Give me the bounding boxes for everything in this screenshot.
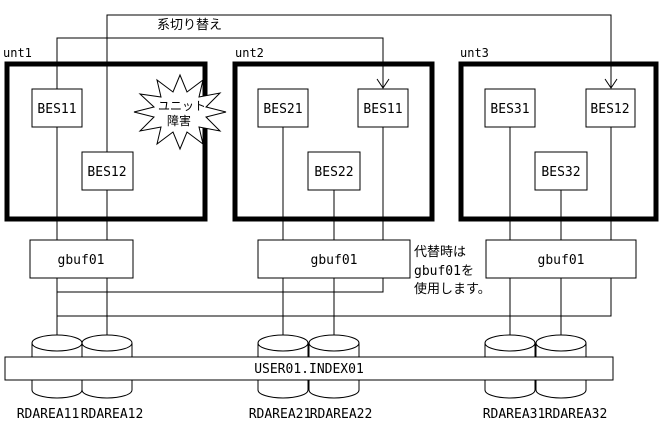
bes31-label: BES31	[490, 102, 529, 117]
bes11-unt2-label: BES11	[363, 102, 402, 117]
rdarea31-label: RDAREA31	[483, 407, 546, 422]
note-line1: 代替時は	[414, 245, 466, 260]
gbuf01-unt2-label: gbuf01	[311, 253, 358, 268]
bes32-label: BES32	[541, 165, 580, 180]
diagram-canvas: 系切り替え unt1 unt2 unt3 BES11 BES12 BES21 B…	[0, 0, 668, 434]
switchover-diagram: 系切り替え unt1 unt2 unt3 BES11 BES12 BES21 B…	[0, 0, 668, 434]
note-line2: gbuf01を	[414, 264, 474, 279]
unit1-label: unt1	[3, 46, 32, 60]
unit3-frame	[461, 64, 656, 219]
unit3-label: unt3	[460, 46, 489, 60]
rdarea12-label: RDAREA12	[81, 407, 144, 422]
shared-index-label: USER01.INDEX01	[254, 362, 364, 377]
gbuf01-unt3-label: gbuf01	[538, 253, 585, 268]
rdarea32-label: RDAREA32	[545, 407, 608, 422]
bes12-unt1-label: BES12	[87, 165, 126, 180]
bes12-unt3-label: BES12	[590, 102, 629, 117]
unit2-label: unt2	[235, 46, 264, 60]
rdarea22-label: RDAREA22	[310, 407, 373, 422]
rdarea11-label: RDAREA11	[17, 407, 80, 422]
switchover-label: 系切り替え	[157, 18, 222, 33]
note-line3: 使用します。	[414, 281, 491, 297]
failure-burst-line1: ユニット	[158, 99, 206, 113]
bes11-unt1-label: BES11	[37, 102, 76, 117]
bes21-label: BES21	[263, 102, 302, 117]
bes22-label: BES22	[314, 165, 353, 180]
rdarea21-label: RDAREA21	[249, 407, 312, 422]
failure-burst-line2: 障害	[167, 113, 191, 128]
gbuf01-unt1-label: gbuf01	[58, 253, 105, 268]
